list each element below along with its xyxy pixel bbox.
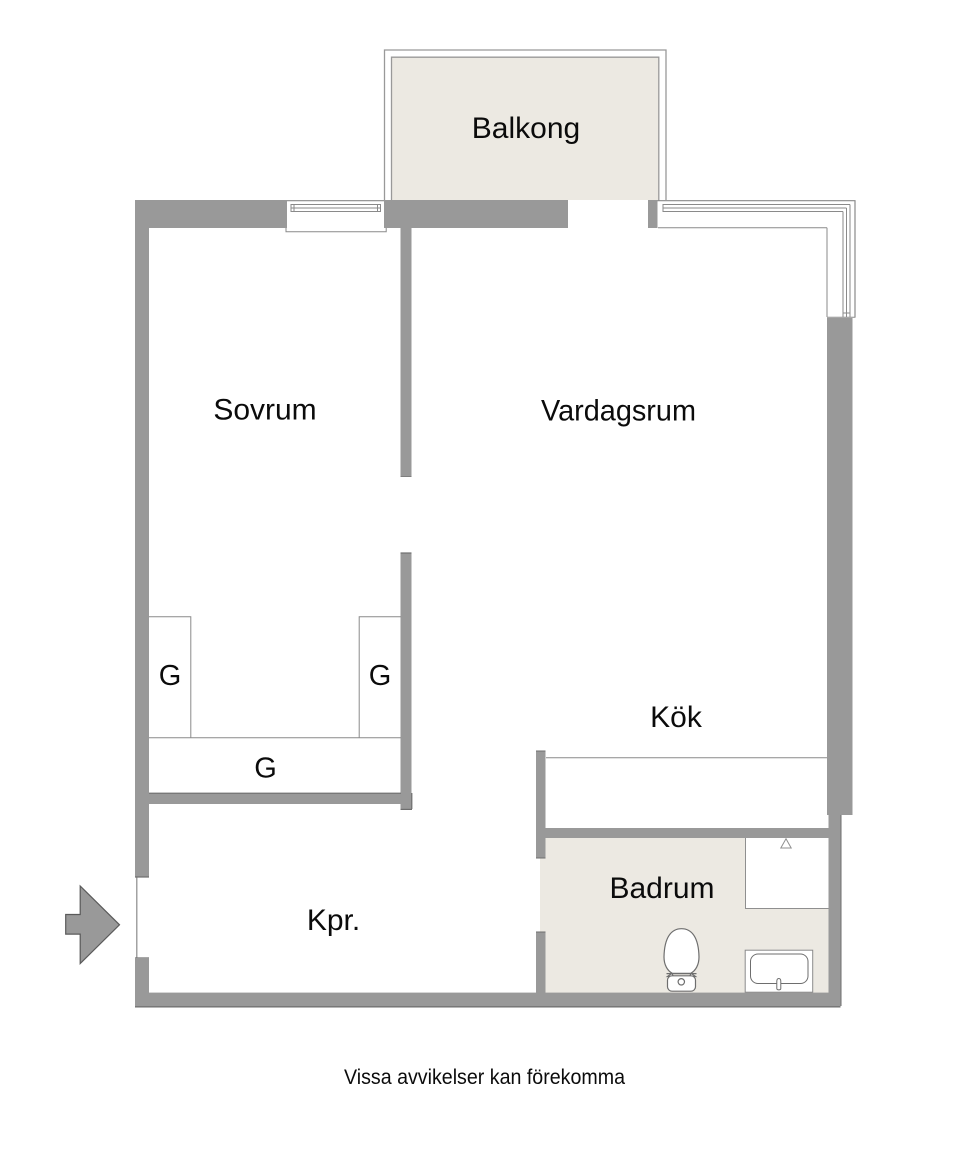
svg-text:Kpr.: Kpr. [307,904,360,937]
svg-text:Sovrum: Sovrum [213,394,316,427]
svg-text:Badrum: Badrum [609,872,714,905]
svg-text:Kök: Kök [650,701,703,734]
svg-text:G: G [369,660,392,692]
svg-text:G: G [159,660,182,692]
svg-text:Vissa avvikelser kan förekomma: Vissa avvikelser kan förekomma [344,1066,625,1089]
svg-text:Vardagsrum: Vardagsrum [541,395,696,428]
svg-text:G: G [254,753,277,785]
svg-text:Balkong: Balkong [472,112,580,145]
